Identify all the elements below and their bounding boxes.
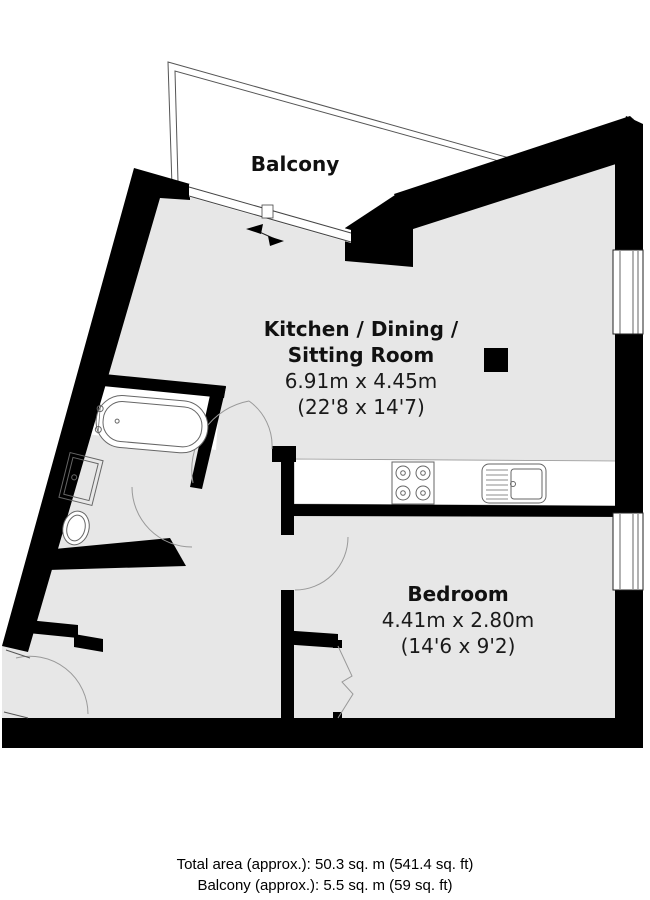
footer-area-block: Total area (approx.): 50.3 sq. m (541.4 … bbox=[177, 856, 474, 894]
hall-bedroom-wall-upper bbox=[281, 448, 294, 535]
window-icon bbox=[613, 250, 643, 334]
bedroom-name: Bedroom bbox=[407, 582, 508, 606]
bathtub bbox=[94, 393, 210, 455]
kitchen-size-metric: 6.91m x 4.45m bbox=[285, 369, 438, 393]
right-wall bbox=[615, 116, 643, 748]
balcony-area-text: Balcony (approx.): 5.5 sq. m (59 sq. ft) bbox=[197, 877, 452, 894]
bedroom-size-imperial: (14'6 x 9'2) bbox=[401, 634, 516, 658]
bathtub-icon bbox=[94, 393, 210, 455]
kitchen-name-line2: Sitting Room bbox=[288, 343, 434, 367]
closet-jamb-top bbox=[333, 640, 342, 648]
floorplan-page: Balcony Kitchen / Dining / Sitting Room … bbox=[0, 0, 650, 900]
bottom-wall bbox=[2, 718, 643, 748]
floorplan-drawing: Balcony Kitchen / Dining / Sitting Room … bbox=[0, 0, 650, 900]
structural-column bbox=[484, 348, 508, 372]
bedroom-size-metric: 4.41m x 2.80m bbox=[382, 608, 535, 632]
kitchen-size-imperial: (22'8 x 14'7) bbox=[297, 395, 425, 419]
kitchen-bedroom-wall bbox=[283, 504, 643, 517]
bedroom-window bbox=[613, 513, 643, 590]
balcony-label: Balcony bbox=[251, 152, 339, 176]
sliding-door-meeting-stile bbox=[262, 205, 273, 218]
kitchen-window bbox=[613, 250, 643, 334]
kitchen-counter bbox=[294, 459, 616, 506]
total-area-text: Total area (approx.): 50.3 sq. m (541.4 … bbox=[177, 856, 474, 873]
window-icon bbox=[613, 513, 643, 590]
kitchen-name-line1: Kitchen / Dining / bbox=[264, 317, 459, 341]
hall-bedroom-wall-lower bbox=[281, 590, 294, 722]
